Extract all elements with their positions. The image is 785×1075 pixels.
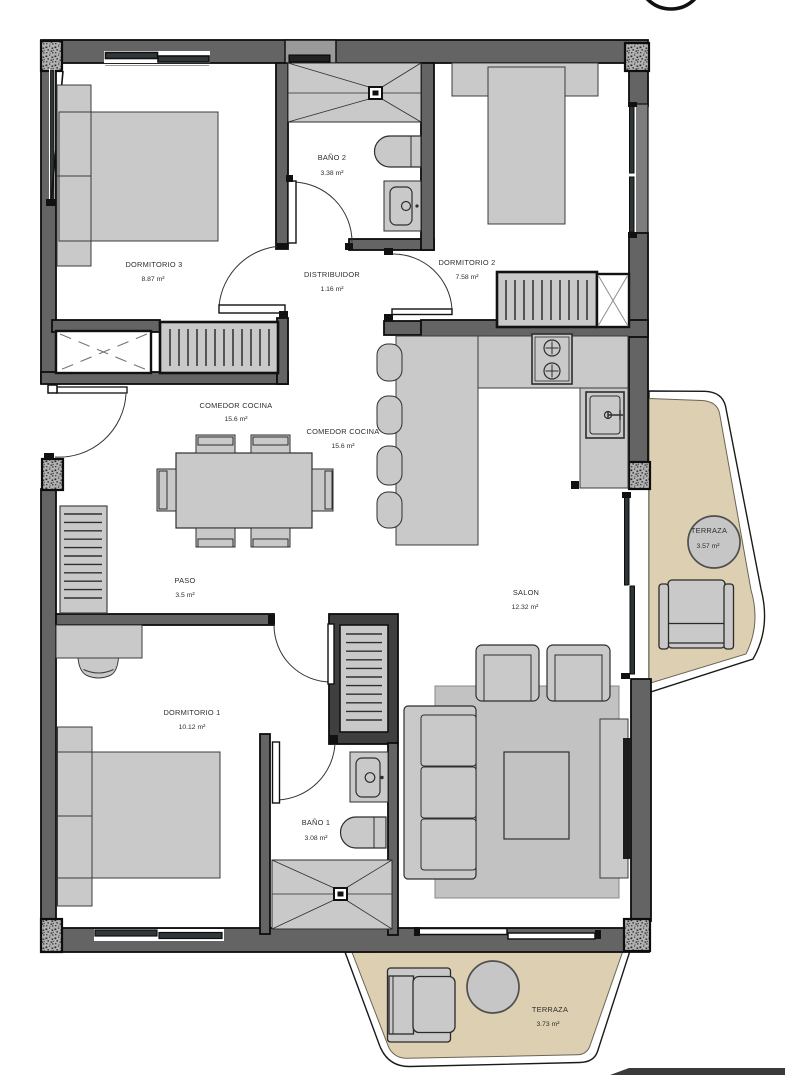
- svg-text:10.12 m²: 10.12 m²: [179, 724, 207, 731]
- svg-text:TERRAZA: TERRAZA: [691, 526, 727, 535]
- svg-text:15.6 m²: 15.6 m²: [224, 416, 248, 423]
- svg-text:DORMITORIO 2: DORMITORIO 2: [438, 258, 495, 267]
- svg-text:DORMITORIO 3: DORMITORIO 3: [125, 260, 182, 269]
- svg-text:DORMITORIO 1: DORMITORIO 1: [163, 708, 220, 717]
- svg-text:3.38 m²: 3.38 m²: [320, 170, 344, 177]
- svg-text:TERRAZA: TERRAZA: [532, 1005, 568, 1014]
- svg-text:PASO: PASO: [175, 576, 196, 585]
- svg-text:12.32 m²: 12.32 m²: [512, 604, 540, 611]
- svg-text:7.58 m²: 7.58 m²: [455, 274, 479, 281]
- svg-text:COMEDOR COCINA: COMEDOR COCINA: [200, 401, 273, 410]
- svg-text:SALON: SALON: [513, 588, 539, 597]
- svg-text:BAÑO 2: BAÑO 2: [318, 153, 347, 162]
- svg-text:COMEDOR COCINA: COMEDOR COCINA: [307, 427, 380, 436]
- svg-text:BAÑO 1: BAÑO 1: [302, 818, 331, 827]
- svg-text:1.16 m²: 1.16 m²: [320, 286, 344, 293]
- svg-text:15.6 m²: 15.6 m²: [331, 443, 355, 450]
- svg-text:DISTRIBUIDOR: DISTRIBUIDOR: [304, 270, 360, 279]
- svg-text:3.57 m²: 3.57 m²: [696, 543, 720, 550]
- svg-text:3.08 m²: 3.08 m²: [304, 835, 328, 842]
- svg-text:3.73 m²: 3.73 m²: [536, 1021, 560, 1028]
- svg-text:3.5 m²: 3.5 m²: [175, 592, 195, 599]
- svg-text:8.87 m²: 8.87 m²: [141, 276, 165, 283]
